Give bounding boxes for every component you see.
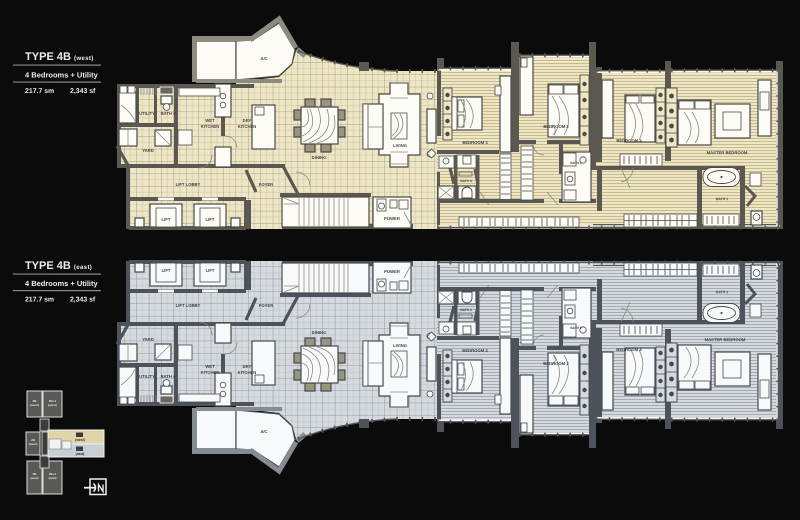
svg-text:4 Bedrooms + Utility: 4 Bedrooms + Utility — [25, 70, 99, 79]
svg-text:BEDROOM 2: BEDROOM 2 — [543, 361, 569, 366]
svg-text:BEDROOM 2: BEDROOM 2 — [543, 124, 569, 129]
svg-text:YARD: YARD — [142, 148, 153, 153]
svg-text:LIFT LOBBY: LIFT LOBBY — [176, 182, 201, 187]
svg-text:BATH 3: BATH 3 — [460, 308, 472, 312]
svg-text:WET: WET — [205, 118, 215, 123]
svg-text:(east): (east) — [76, 452, 85, 456]
svg-text:LIFT: LIFT — [162, 217, 171, 222]
svg-text:LIFT: LIFT — [206, 268, 215, 273]
svg-text:KITCHEN: KITCHEN — [238, 370, 257, 375]
svg-text:BEDROOM 3: BEDROOM 3 — [462, 348, 488, 353]
svg-text:DINING: DINING — [312, 330, 327, 335]
svg-text:4 Bedrooms + Utility: 4 Bedrooms + Utility — [25, 279, 99, 288]
svg-text:DINING: DINING — [312, 155, 327, 160]
svg-text:WET: WET — [205, 364, 215, 369]
svg-text:BATH 4: BATH 4 — [161, 111, 176, 116]
svg-text:LIFT: LIFT — [206, 217, 215, 222]
svg-text:FOYER: FOYER — [259, 182, 273, 187]
svg-text:(west): (west) — [29, 442, 38, 446]
svg-text:DRY: DRY — [243, 118, 252, 123]
svg-text:217.7 sm: 217.7 sm — [25, 88, 54, 95]
svg-text:TYPE 4B (east): TYPE 4B (east) — [25, 260, 92, 272]
svg-text:KITCHEN: KITCHEN — [201, 124, 220, 129]
svg-text:FOYER: FOYER — [259, 303, 273, 308]
svg-text:KITCHEN: KITCHEN — [238, 124, 257, 129]
svg-text:(west): (west) — [48, 403, 57, 407]
svg-text:BATH 2: BATH 2 — [570, 326, 582, 330]
svg-text:(west): (west) — [75, 438, 85, 442]
svg-text:217.7 sm: 217.7 sm — [25, 296, 54, 303]
svg-text:BATH 1: BATH 1 — [716, 197, 728, 201]
svg-text:YARD: YARD — [142, 337, 153, 342]
svg-text:LIFT LOBBY: LIFT LOBBY — [176, 303, 201, 308]
svg-text:BEDROOM 4: BEDROOM 4 — [616, 138, 642, 143]
svg-text:BEDROOM 4: BEDROOM 4 — [616, 347, 642, 352]
svg-text:DRY: DRY — [243, 364, 252, 369]
svg-text:UTILITY: UTILITY — [139, 374, 155, 379]
svg-text:POWER: POWER — [384, 216, 400, 221]
svg-text:LIFT: LIFT — [162, 268, 171, 273]
svg-text:BATH 3: BATH 3 — [460, 179, 472, 183]
svg-text:LIVING: LIVING — [393, 343, 407, 348]
svg-text:(west): (west) — [30, 403, 39, 407]
svg-text:2,343 sf: 2,343 sf — [70, 297, 96, 304]
svg-text:(east): (east) — [48, 476, 56, 480]
svg-text:POWER: POWER — [384, 269, 400, 274]
svg-text:LIVING: LIVING — [393, 143, 407, 148]
svg-text:A/C: A/C — [260, 429, 267, 434]
svg-text:UTILITY: UTILITY — [139, 111, 155, 116]
svg-text:(east): (east) — [30, 476, 38, 480]
svg-text:MASTER BEDROOM: MASTER BEDROOM — [705, 337, 746, 342]
svg-text:A/C: A/C — [260, 56, 267, 61]
svg-text:MASTER BEDROOM: MASTER BEDROOM — [707, 150, 748, 155]
svg-text:TYPE 4B (west): TYPE 4B (west) — [25, 51, 94, 63]
svg-text:2,343 sf: 2,343 sf — [70, 88, 96, 95]
svg-text:BATH 1: BATH 1 — [716, 290, 728, 294]
svg-text:KITCHEN: KITCHEN — [201, 370, 220, 375]
svg-text:BATH 4: BATH 4 — [161, 374, 176, 379]
svg-text:BATH 2: BATH 2 — [570, 161, 582, 165]
svg-text:BEDROOM 3: BEDROOM 3 — [462, 140, 488, 145]
